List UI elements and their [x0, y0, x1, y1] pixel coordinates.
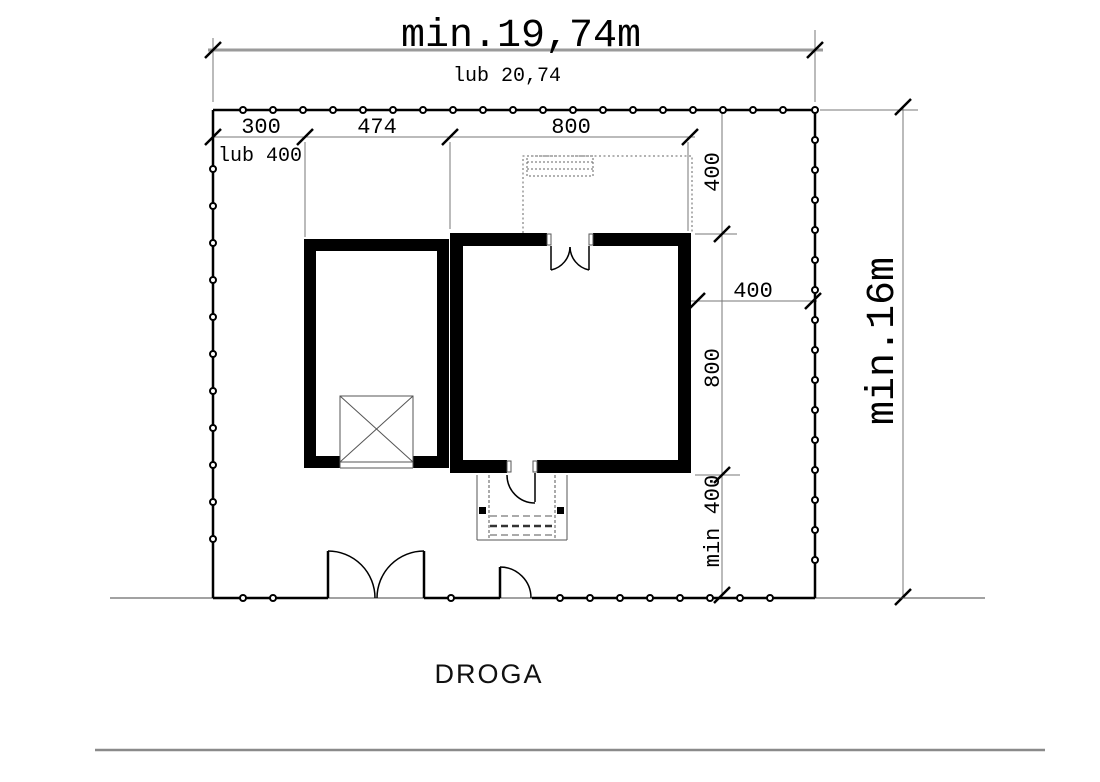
- dimension-top-row: 300 lub 400 474 800: [205, 115, 698, 237]
- double-gate: [328, 551, 424, 598]
- plot-width-alt-label: lub 20,74: [453, 65, 561, 88]
- setback-left-label: 300: [241, 115, 281, 140]
- door-jamb: [589, 234, 593, 245]
- house-interior: [463, 246, 678, 460]
- terrace-outline: [523, 156, 692, 233]
- terrace-steps: [527, 156, 593, 176]
- door-jamb: [547, 234, 551, 245]
- double-gate-left-swing: [328, 551, 375, 598]
- site-plan-page: min.19,74m lub 20,74 300 lub 400 474 800…: [0, 0, 1100, 782]
- garage-annex-walls: [304, 239, 449, 468]
- setback-north-label: 400: [701, 152, 726, 192]
- house-walls: [450, 233, 691, 473]
- setback-left-alt-label: lub 400: [218, 145, 302, 168]
- door-jamb: [533, 461, 537, 472]
- house-width-label: 800: [551, 115, 591, 140]
- porch-post: [479, 507, 486, 514]
- pedestrian-gate-swing: [500, 567, 531, 598]
- pedestrian-gate: [500, 567, 531, 598]
- dimension-plot-width: min.19,74m lub 20,74: [205, 14, 823, 102]
- entry-stairs: [477, 475, 567, 540]
- setback-east-label: 400: [733, 279, 773, 304]
- double-gate-right-swing: [377, 551, 424, 598]
- road-label: DROGA: [434, 659, 543, 689]
- terrace: [523, 156, 692, 233]
- porch-post: [557, 507, 564, 514]
- dimension-right-inner: 400 800 min 400: [695, 112, 740, 603]
- dimension-east-setback: 400: [689, 279, 821, 309]
- plot-depth-label: min.16m: [861, 257, 906, 425]
- site-plan-drawing: min.19,74m lub 20,74 300 lub 400 474 800…: [0, 0, 1100, 782]
- plot-width-label: min.19,74m: [401, 14, 641, 59]
- garage-width-label: 474: [357, 115, 397, 140]
- setback-south-label: min 400: [701, 475, 726, 567]
- door-swing: [507, 475, 535, 503]
- house-depth-label: 800: [701, 348, 726, 388]
- terrace-door-opening: [547, 233, 593, 246]
- dimension-plot-depth: min.16m: [820, 99, 918, 605]
- annex-interior: [316, 251, 437, 456]
- door-jamb: [507, 461, 511, 472]
